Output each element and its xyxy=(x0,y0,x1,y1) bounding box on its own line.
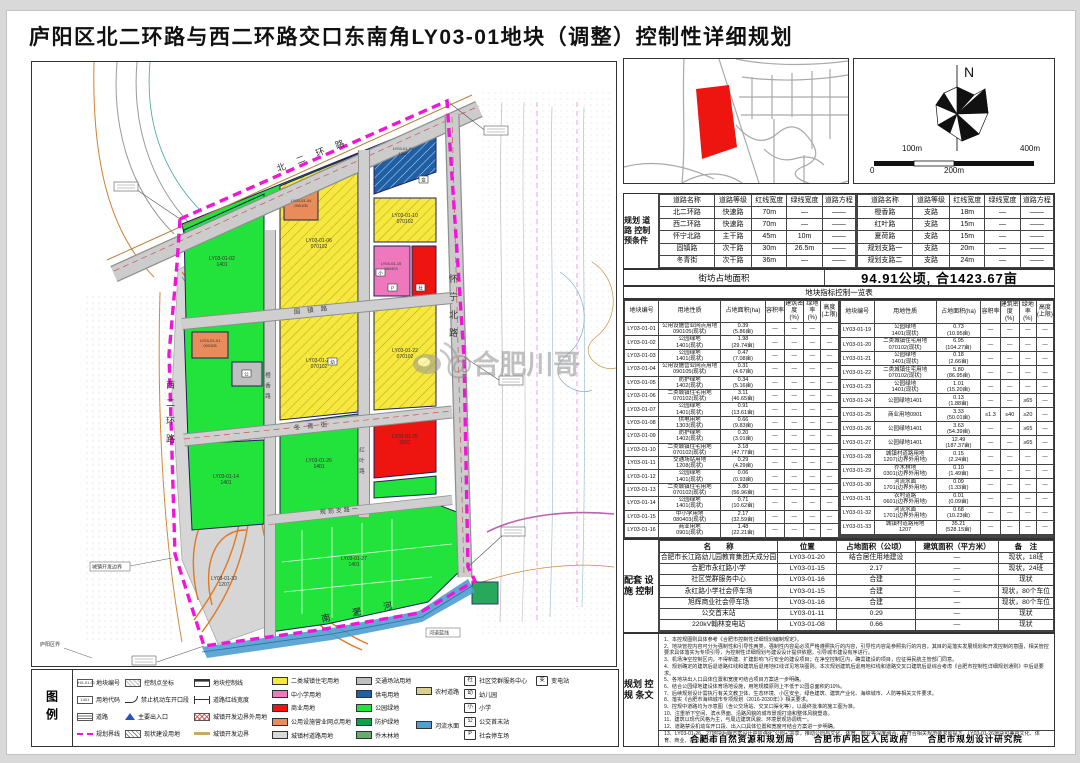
table-cell: —— xyxy=(822,207,855,219)
table-cell: 现状 xyxy=(998,575,1053,586)
table-cell: — xyxy=(981,478,1000,492)
table-cell xyxy=(1019,536,1036,537)
table-cell: 0.68 (10.23亩) xyxy=(936,506,981,520)
label-xihuan-road: 西二环路 xyxy=(165,380,175,452)
legend-item: 小小学 xyxy=(464,703,569,713)
column-header: 容积率 xyxy=(765,301,784,323)
table-cell: 河流水面 1701(边界外用地) xyxy=(874,506,936,520)
table-cell: — xyxy=(821,430,838,443)
table-cell: — xyxy=(1019,352,1036,366)
table-cell: — xyxy=(765,483,784,496)
table-cell: 0.71 (10.62亩) xyxy=(721,497,766,510)
table-cell: 0.13 (1.88亩) xyxy=(936,394,981,408)
table-cell: 公用设施营业网点用地 090105(现状) xyxy=(659,323,721,336)
table-cell: LY03-01-27 xyxy=(840,436,874,450)
location-inset-map xyxy=(624,59,848,183)
table-row: 永红路小学社会停车场LY03-01-15合建—现状，80个车位 xyxy=(660,586,1054,597)
note-item: 4、规划确定的建筑后退道路红线和建筑后退用地红线详见地块图则。本次规划建筑后退用… xyxy=(664,664,1049,677)
legend-item-label: 变电站 xyxy=(551,676,569,685)
table-cell: 0.09 (1.33亩) xyxy=(936,478,981,492)
table-cell: 20m xyxy=(950,243,985,255)
column-header: 道路方程 xyxy=(822,195,855,207)
scale-0: 0 xyxy=(870,166,874,175)
table-cell: 0.15 (2.24亩) xyxy=(936,450,981,464)
legend-symbol-boxtext: 1401 xyxy=(77,696,93,704)
table-row: LY03-01-08供电用地 1303(现状)0.66 (9.83亩)———— xyxy=(625,416,839,429)
legend-item-label: 主要出入口 xyxy=(138,712,168,721)
table-cell: 0.06 (0.93亩) xyxy=(721,470,766,483)
column-header: 道路名称 xyxy=(858,195,913,207)
legend-symbol-ctrl xyxy=(194,679,210,687)
location-inset-panel xyxy=(623,58,849,184)
table-cell: 合肥市长江路幼儿园教育集团天成分园 xyxy=(660,553,778,564)
table-cell: LY03-01-13 xyxy=(625,483,659,496)
table-cell: — xyxy=(765,349,784,362)
table-cell: 12.49 (187.37亩) xyxy=(936,436,981,450)
legend-icon-小: 小 xyxy=(464,703,476,713)
legend-item-label: 禁止机动车开口段 xyxy=(141,695,189,704)
table-cell: ≤1.3 xyxy=(981,408,1000,422)
legend-item: 1401用地代码 xyxy=(77,695,120,704)
table-cell xyxy=(778,630,837,631)
label-chengxiang-road: 橙香路 xyxy=(264,371,271,404)
table-cell: 交通场站用地 1208(现状) xyxy=(659,457,721,470)
column-header: 地块编号 xyxy=(625,301,659,323)
table-cell: 支路 xyxy=(912,255,949,267)
table-cell: 红叶路 xyxy=(858,219,913,231)
table-row: LY03-01-24公园绿地14010.13 (1.88亩)——≥65— xyxy=(840,394,1054,408)
table-row: LY03-01-01公用设施营业网点用地 090105(现状)0.39 (5.8… xyxy=(625,323,839,336)
table-cell: — xyxy=(804,323,821,336)
table-cell: — xyxy=(985,255,1020,267)
legend-chip-protective xyxy=(356,718,372,726)
table-cell: — xyxy=(821,457,838,470)
table-row: LY03-01-10二类城镇住宅用地 070102(现状)3.18 (47.77… xyxy=(625,443,839,456)
table-cell: — xyxy=(821,363,838,376)
table-cell: LY03-01-02 xyxy=(625,336,659,349)
table-cell: — xyxy=(981,366,1000,380)
legend-symbol-devb xyxy=(194,732,210,735)
table-cell: 公用设施营业网点用地 090105(现状) xyxy=(659,363,721,376)
table-cell: 商业用地0901 xyxy=(874,408,936,422)
table-cell: — xyxy=(1036,436,1053,450)
legend-panel: 图例 HX-01-01地块编号1401用地代码道路规划界线控制点坐标禁止机动车开… xyxy=(31,669,619,747)
table-cell: — xyxy=(1000,422,1019,436)
table-row: 旭辉商业社会停车场LY03-01-16合建—现状，80个车位 xyxy=(660,597,1054,608)
table-cell: — xyxy=(804,349,821,362)
table-cell: 河流水面 1701(边界外用地) xyxy=(874,478,936,492)
column-header: 占地面积(ha) xyxy=(721,301,766,323)
table-cell: — xyxy=(1000,394,1019,408)
table-row: LY03-01-09防护绿地 1402(现状)0.20 (3.01亩)———— xyxy=(625,430,839,443)
table-cell: 0.10 (1.49亩) xyxy=(936,464,981,478)
table-cell: LY03-01-14 xyxy=(625,497,659,510)
legend-item-label: 交通场站用地 xyxy=(375,676,411,685)
table-cell: LY03-01-20 xyxy=(778,553,837,564)
table-cell: LY03-01-31 xyxy=(840,492,874,506)
column-header: 红线宽度 xyxy=(752,195,787,207)
table-cell: — xyxy=(1036,506,1053,520)
legend-column: 社社区党群服务中心变变电站幼幼儿园小小学公公交首末站P社会停车场 xyxy=(464,674,569,742)
legend-item-label: 用地代码 xyxy=(96,695,120,704)
table-cell: 城镇村道路用地 1207 xyxy=(874,520,936,534)
legend-item-label: 商业用地 xyxy=(291,703,315,712)
table-cell: — xyxy=(1000,464,1019,478)
table-cell: — xyxy=(785,376,804,389)
table-row: LY03-01-13二类城镇住宅用地 070102(现状)3.80 (56.96… xyxy=(625,483,839,496)
table-cell: 18m xyxy=(950,207,985,219)
table-cell: LY03-01-22 xyxy=(840,366,874,380)
table-cell: 公园绿地 1401(现状) xyxy=(874,380,936,394)
table-cell: LY03-01-07 xyxy=(625,403,659,416)
legend-item-label: 幼儿园 xyxy=(479,690,497,699)
road-table-right: 道路名称道路等级红线宽度绿线宽度道路方程橙香路支路18m———红叶路支路15m—… xyxy=(856,194,1054,268)
svg-text:小: 小 xyxy=(378,270,383,277)
table-cell: 15m xyxy=(950,231,985,243)
table-cell: — xyxy=(1036,422,1053,436)
table-cell: —— xyxy=(822,255,855,267)
svg-text:@合肥川哥: @合肥川哥 xyxy=(446,349,580,380)
table-cell xyxy=(1036,536,1053,537)
legend-item: HX-01-01地块编号 xyxy=(77,678,120,687)
table-cell: 乔木林地 0301(边界外用地) xyxy=(874,464,936,478)
legend-item-label: 公用设施营业网点用地 xyxy=(291,717,351,726)
legend-item: 禁止机动车开口段 xyxy=(125,695,189,704)
legend-symbol-coord xyxy=(125,679,141,687)
legend-chip-transport xyxy=(356,677,372,685)
column-header: 地块编号 xyxy=(840,301,874,324)
table-cell: 0.91 (13.61亩) xyxy=(721,403,766,416)
table-row: LY03-01-16商业用地 0901(现状)1.48 (22.21亩)———— xyxy=(625,524,839,537)
table-cell: — xyxy=(804,457,821,470)
table-cell: 0.39 (5.86亩) xyxy=(721,323,766,336)
table-cell: — xyxy=(804,403,821,416)
table-cell: 公园绿地 1401(现状) xyxy=(659,497,721,510)
index-table-right: 地块编号用地性质占地面积(ha)容积率建筑密度 (%)绿地率 (%)高度 (上限… xyxy=(840,300,1055,538)
legend-chip-rural_road xyxy=(416,687,432,695)
table-cell: 36m xyxy=(752,255,787,267)
table-cell: 1.98 (29.74亩) xyxy=(721,336,766,349)
table-cell: — xyxy=(785,336,804,349)
table-cell: —— xyxy=(1020,231,1053,243)
table-cell xyxy=(837,630,916,631)
table-cell: 公园绿地1401 xyxy=(874,394,936,408)
table-row: LY03-01-14公园绿地 1401(现状)0.71 (10.62亩)———— xyxy=(625,497,839,510)
table-cell: — xyxy=(821,443,838,456)
table-cell: 3.63 (54.39亩) xyxy=(936,422,981,436)
table-row: LY03-01-27公园绿地140112.49 (187.37亩)——≥65— xyxy=(840,436,1054,450)
legend-item: 控制点坐标 xyxy=(125,678,189,687)
table-cell: — xyxy=(804,336,821,349)
table-cell: LY03-01-24 xyxy=(840,394,874,408)
table-cell: — xyxy=(1019,492,1036,506)
column-header: 位置 xyxy=(778,541,837,553)
column-header: 占地面积（公顷） xyxy=(837,541,916,553)
table-cell: 快速路 xyxy=(714,219,751,231)
table-cell: 公园绿地 1401(现状) xyxy=(874,352,936,366)
label-hongye-road: 红叶路 xyxy=(358,446,365,479)
notes-lines: 1、本控规图则具体参考《合肥市控制性详细规划编制规定》。2、地块管控内容可分为强… xyxy=(659,634,1054,744)
table-cell: — xyxy=(916,597,999,608)
table-cell: — xyxy=(804,483,821,496)
table-cell: — xyxy=(1036,366,1053,380)
table-cell: 2.17 xyxy=(837,564,916,575)
legend-item: 幼幼儿园 xyxy=(464,689,569,699)
table-cell: LY03-01-04 xyxy=(625,363,659,376)
compass-panel: N 100m 400m 0 200m xyxy=(853,58,1055,184)
table-cell: — xyxy=(916,553,999,564)
table-cell: — xyxy=(985,231,1020,243)
legend-item: 道路红线宽度 xyxy=(194,695,267,704)
table-cell: 怀宁北路 xyxy=(660,231,715,243)
table-cell: 合建 xyxy=(837,586,916,597)
table-cell: 商业用地 0901(现状) xyxy=(659,524,721,537)
table-cell: — xyxy=(785,483,804,496)
table-cell: 公园绿地 1401(现状) xyxy=(874,324,936,338)
facilities-panel: 配套 设施 控制 名 称位置占地面积（公顷）建筑面积（平方米）备 注合肥市长江路… xyxy=(623,539,1055,633)
table-cell: — xyxy=(981,380,1000,394)
table-cell: — xyxy=(1019,324,1036,338)
table-cell: 0.29 (4.29亩) xyxy=(721,457,766,470)
table-cell: LY03-01-33 xyxy=(840,520,874,534)
table-row: 北二环路快速路70m——— xyxy=(660,207,856,219)
table-cell: 公园绿地 1401(现状) xyxy=(659,470,721,483)
legend-item-label: 社区党群服务中心 xyxy=(479,676,527,685)
table-row: LY03-01-07公园绿地 1401(现状)0.91 (13.61亩)———— xyxy=(625,403,839,416)
label-huaining-road: 怀宁北路 xyxy=(448,273,458,346)
legend-item: 规划界线 xyxy=(77,729,120,738)
table-cell: — xyxy=(821,349,838,362)
table-row: 冬青街次干路36m——— xyxy=(660,255,856,267)
table-row: 夏荷路支路15m——— xyxy=(858,231,1054,243)
table-cell: — xyxy=(785,430,804,443)
table-cell: 二类城镇住宅用地 070102(现状) xyxy=(659,443,721,456)
table-cell: 3.18 (47.77亩) xyxy=(721,443,766,456)
legend-icon-P: P xyxy=(464,730,476,740)
table-cell: 0.66 xyxy=(837,619,916,630)
table-cell: 二类城镇住宅用地 070102(现状) xyxy=(659,483,721,496)
note-item: 9、控规中道路均为示意图（含公交场站、交叉口渠化等），以最终批准的施工图为准。 xyxy=(664,704,1049,711)
table-cell: 社区党群服务中心 xyxy=(660,575,778,586)
index-table-title: 地块指标控制一览表 xyxy=(623,286,1055,299)
legend-item-label: 控制点坐标 xyxy=(144,678,174,687)
table-cell: — xyxy=(1000,450,1019,464)
main-map-panel: LY03-01-021401 LY03-01-06070102 LY03-01-… xyxy=(31,61,617,667)
table-cell: — xyxy=(1019,478,1036,492)
table-cell: — xyxy=(804,470,821,483)
scale-200m: 200m xyxy=(944,166,964,175)
table-cell: — xyxy=(787,219,822,231)
table-cell: 公园绿地 1401(现状) xyxy=(659,336,721,349)
svg-text:公: 公 xyxy=(244,372,249,377)
table-cell: 0.34 (5.16亩) xyxy=(721,376,766,389)
table-cell: LY03-01-10 xyxy=(625,443,659,456)
legend-icon-公: 公 xyxy=(464,717,476,727)
table-cell: 3.33 (50.01亩) xyxy=(936,408,981,422)
table-cell: — xyxy=(765,524,784,537)
notes-body: 1、本控规图则具体参考《合肥市控制性详细规划编制规定》。2、地块管控内容可分为强… xyxy=(659,634,1054,746)
legend-item: 交通场站用地 xyxy=(356,676,411,685)
table-row: LY03-01-12公园绿地 1401(现状)0.06 (0.93亩)———— xyxy=(625,470,839,483)
table-cell: — xyxy=(1019,520,1036,534)
table-cell: — xyxy=(785,470,804,483)
table-cell: —— xyxy=(1020,243,1053,255)
legend-item: 主要出入口 xyxy=(125,712,189,721)
table-cell: — xyxy=(1036,352,1053,366)
legend-column: 农村道路河流水面 xyxy=(416,674,459,742)
table-cell: — xyxy=(1019,464,1036,478)
legend-icon-幼: 幼 xyxy=(464,689,476,699)
table-cell: 中小学用地 080403(现状) xyxy=(659,510,721,523)
legend-item-label: 道路 xyxy=(96,712,108,721)
table-cell: —— xyxy=(822,219,855,231)
table-cell: — xyxy=(785,323,804,336)
road-control-label: 规划 道路 控制 预条件 xyxy=(624,194,659,268)
table-row: LY03-01-06二类城镇住宅用地 070102(现状)3.11 (46.65… xyxy=(625,390,839,403)
table-row: LY03-01-03公园绿地 1401(现状)0.47 (7.08亩)———— xyxy=(625,349,839,362)
table-cell: 6.95 (104.27亩) xyxy=(936,338,981,352)
legend-item: 地块控制线 xyxy=(194,678,267,687)
legend-title: 图例 xyxy=(32,670,73,746)
column-header: 绿地率 (%) xyxy=(1019,301,1036,324)
table-cell: — xyxy=(765,510,784,523)
table-cell: LY03-01-21 xyxy=(840,352,874,366)
table-cell: 0.20 (3.01亩) xyxy=(721,430,766,443)
table-cell: — xyxy=(821,510,838,523)
legend-icon-变: 变 xyxy=(536,676,548,686)
table-cell: — xyxy=(804,524,821,537)
table-cell: 3.80 (56.96亩) xyxy=(721,483,766,496)
table-cell: 橙香路 xyxy=(858,207,913,219)
table-cell: — xyxy=(981,324,1000,338)
table-row: LY03-01-25商业用地09013.33 (50.01亩)≤1.3≤40≥2… xyxy=(840,408,1054,422)
note-item: 2、地块管控内容可分为强制性和引导性两类，强制性内容是必须严格遵照执行的内容，引… xyxy=(664,644,1049,657)
table-cell: 220kV翰林变电站 xyxy=(660,619,778,630)
block-area-row: 街坊占地面积 94.91公顷, 合1423.67亩 xyxy=(623,269,1055,286)
table-cell: 26.5m xyxy=(787,243,822,255)
table-cell: 0.73 (10.95亩) xyxy=(936,324,981,338)
table-row: LY03-01-20二类城镇住宅用地 070102(现状)6.95 (104.2… xyxy=(840,338,1054,352)
table-cell xyxy=(936,536,981,537)
table-cell: 0.31 (4.67亩) xyxy=(721,363,766,376)
table-row xyxy=(840,536,1054,537)
table-cell xyxy=(1000,536,1019,537)
north-letter: N xyxy=(964,64,974,80)
legend-chip-commercial xyxy=(272,704,288,712)
table-cell: 10m xyxy=(787,231,822,243)
table-cell: — xyxy=(785,443,804,456)
table-cell: — xyxy=(765,457,784,470)
table-cell: 快速路 xyxy=(714,207,751,219)
table-cell: 公交首末站 xyxy=(660,608,778,619)
plan-sheet: 庐阳区北二环路与西二环路交口东南角LY03-01地块（调整）控制性详细规划 xyxy=(6,10,1076,755)
table-cell: — xyxy=(785,524,804,537)
index-table-right: 地块编号用地性质占地面积(ha)容积率建筑密度 (%)绿地率 (%)高度 (上限… xyxy=(839,300,1055,538)
note-item: 6、结合公园绿地建设体育场地设施，用地规模原则上不低于公园总面积的10%。 xyxy=(664,684,1049,691)
table-cell: 二类城镇住宅用地 070102(现状) xyxy=(874,366,936,380)
table-cell: — xyxy=(1000,436,1019,450)
table-cell: — xyxy=(821,403,838,416)
table-row: 合肥市永红路小学LY03-01-152.17—现状，24班 xyxy=(660,564,1054,575)
legend-item: 中小学用地 xyxy=(272,690,351,699)
legend-item-label: 城镇开发边界 xyxy=(213,729,249,738)
table-cell: LY03-01-23 xyxy=(840,380,874,394)
legend-item: 公用设施营业网点用地 xyxy=(272,717,351,726)
table-cell: 次干路 xyxy=(714,243,751,255)
legend-item: 社社区党群服务中心变变电站 xyxy=(464,676,569,686)
table-cell: 0.66 (9.83亩) xyxy=(721,416,766,429)
notes-label: 规划 控规 条文 xyxy=(624,634,659,746)
table-cell: — xyxy=(821,416,838,429)
table-row xyxy=(660,630,1054,631)
table-row: 社区党群服务中心LY03-01-16合建—现状 xyxy=(660,575,1054,586)
legend-symbol-entr xyxy=(125,713,135,720)
table-cell: 公园绿地 1401(现状) xyxy=(659,403,721,416)
table-cell xyxy=(840,536,874,537)
table-row: 公交首末站LY03-01-110.29—现状 xyxy=(660,608,1054,619)
table-cell: — xyxy=(985,219,1020,231)
table-cell: — xyxy=(804,416,821,429)
table-cell: — xyxy=(821,390,838,403)
column-header: 绿地率 (%) xyxy=(804,301,821,323)
table-cell: 现状，80个车位 xyxy=(998,586,1053,597)
table-cell: 24m xyxy=(950,255,985,267)
table-cell: 供电用地 1303(现状) xyxy=(659,416,721,429)
facilities-table: 名 称位置占地面积（公顷）建筑面积（平方米）备 注合肥市长江路幼儿园教育集团天成… xyxy=(659,540,1054,632)
table-cell: LY03-01-11 xyxy=(778,608,837,619)
table-cell: — xyxy=(785,510,804,523)
table-cell: 夏荷路 xyxy=(858,231,913,243)
column-header: 红线宽度 xyxy=(950,195,985,207)
table-cell xyxy=(981,536,1000,537)
table-row: 220kV翰林变电站LY03-01-080.66—现状 xyxy=(660,619,1054,630)
table-cell: — xyxy=(981,492,1000,506)
legend-icon-社: 社 xyxy=(464,676,476,686)
table-row: LY03-01-31农村道路 0601(边界外用地)0.01 (0.09亩)——… xyxy=(840,492,1054,506)
table-cell: 冬青街 xyxy=(660,255,715,267)
table-cell: 1.01 (15.20亩) xyxy=(936,380,981,394)
legend-symbol-boxtext: HX-01-01 xyxy=(77,679,93,687)
table-row: LY03-01-23公园绿地 1401(现状)1.01 (15.20亩)———— xyxy=(840,380,1054,394)
table-cell: 30m xyxy=(752,243,787,255)
table-cell: 支路 xyxy=(912,231,949,243)
table-cell: — xyxy=(1019,506,1036,520)
table-cell: LY03-01-32 xyxy=(840,506,874,520)
table-row: 红叶路支路15m——— xyxy=(858,219,1054,231)
table-cell: 公园绿地 1401(现状) xyxy=(659,349,721,362)
column-header: 道路等级 xyxy=(714,195,751,207)
table-cell: — xyxy=(765,323,784,336)
table-cell: — xyxy=(1036,380,1053,394)
table-cell: — xyxy=(1019,380,1036,394)
table-cell: LY03-01-08 xyxy=(625,416,659,429)
legend-item-label: 地块控制线 xyxy=(213,678,243,687)
table-cell: LY03-01-16 xyxy=(778,575,837,586)
table-cell: — xyxy=(981,436,1000,450)
table-cell: — xyxy=(1036,492,1053,506)
column-header: 用地性质 xyxy=(874,301,936,324)
legend-symbol-outb xyxy=(194,713,210,721)
table-cell: — xyxy=(1036,520,1053,534)
table-row: LY03-01-22二类城镇住宅用地 070102(现状)5.80 (86.95… xyxy=(840,366,1054,380)
table-row: LY03-01-11交通场站用地 1208(现状)0.29 (4.29亩)———… xyxy=(625,457,839,470)
table-row: LY03-01-02公园绿地 1401(现状)1.98 (29.74亩)———— xyxy=(625,336,839,349)
table-row: LY03-01-33城镇村道路用地 120735.21 (528.15亩)———… xyxy=(840,520,1054,534)
table-cell: 35.21 (528.15亩) xyxy=(936,520,981,534)
legend-chip-residential xyxy=(272,677,288,685)
table-cell: — xyxy=(981,450,1000,464)
table-cell: 70m xyxy=(752,219,787,231)
